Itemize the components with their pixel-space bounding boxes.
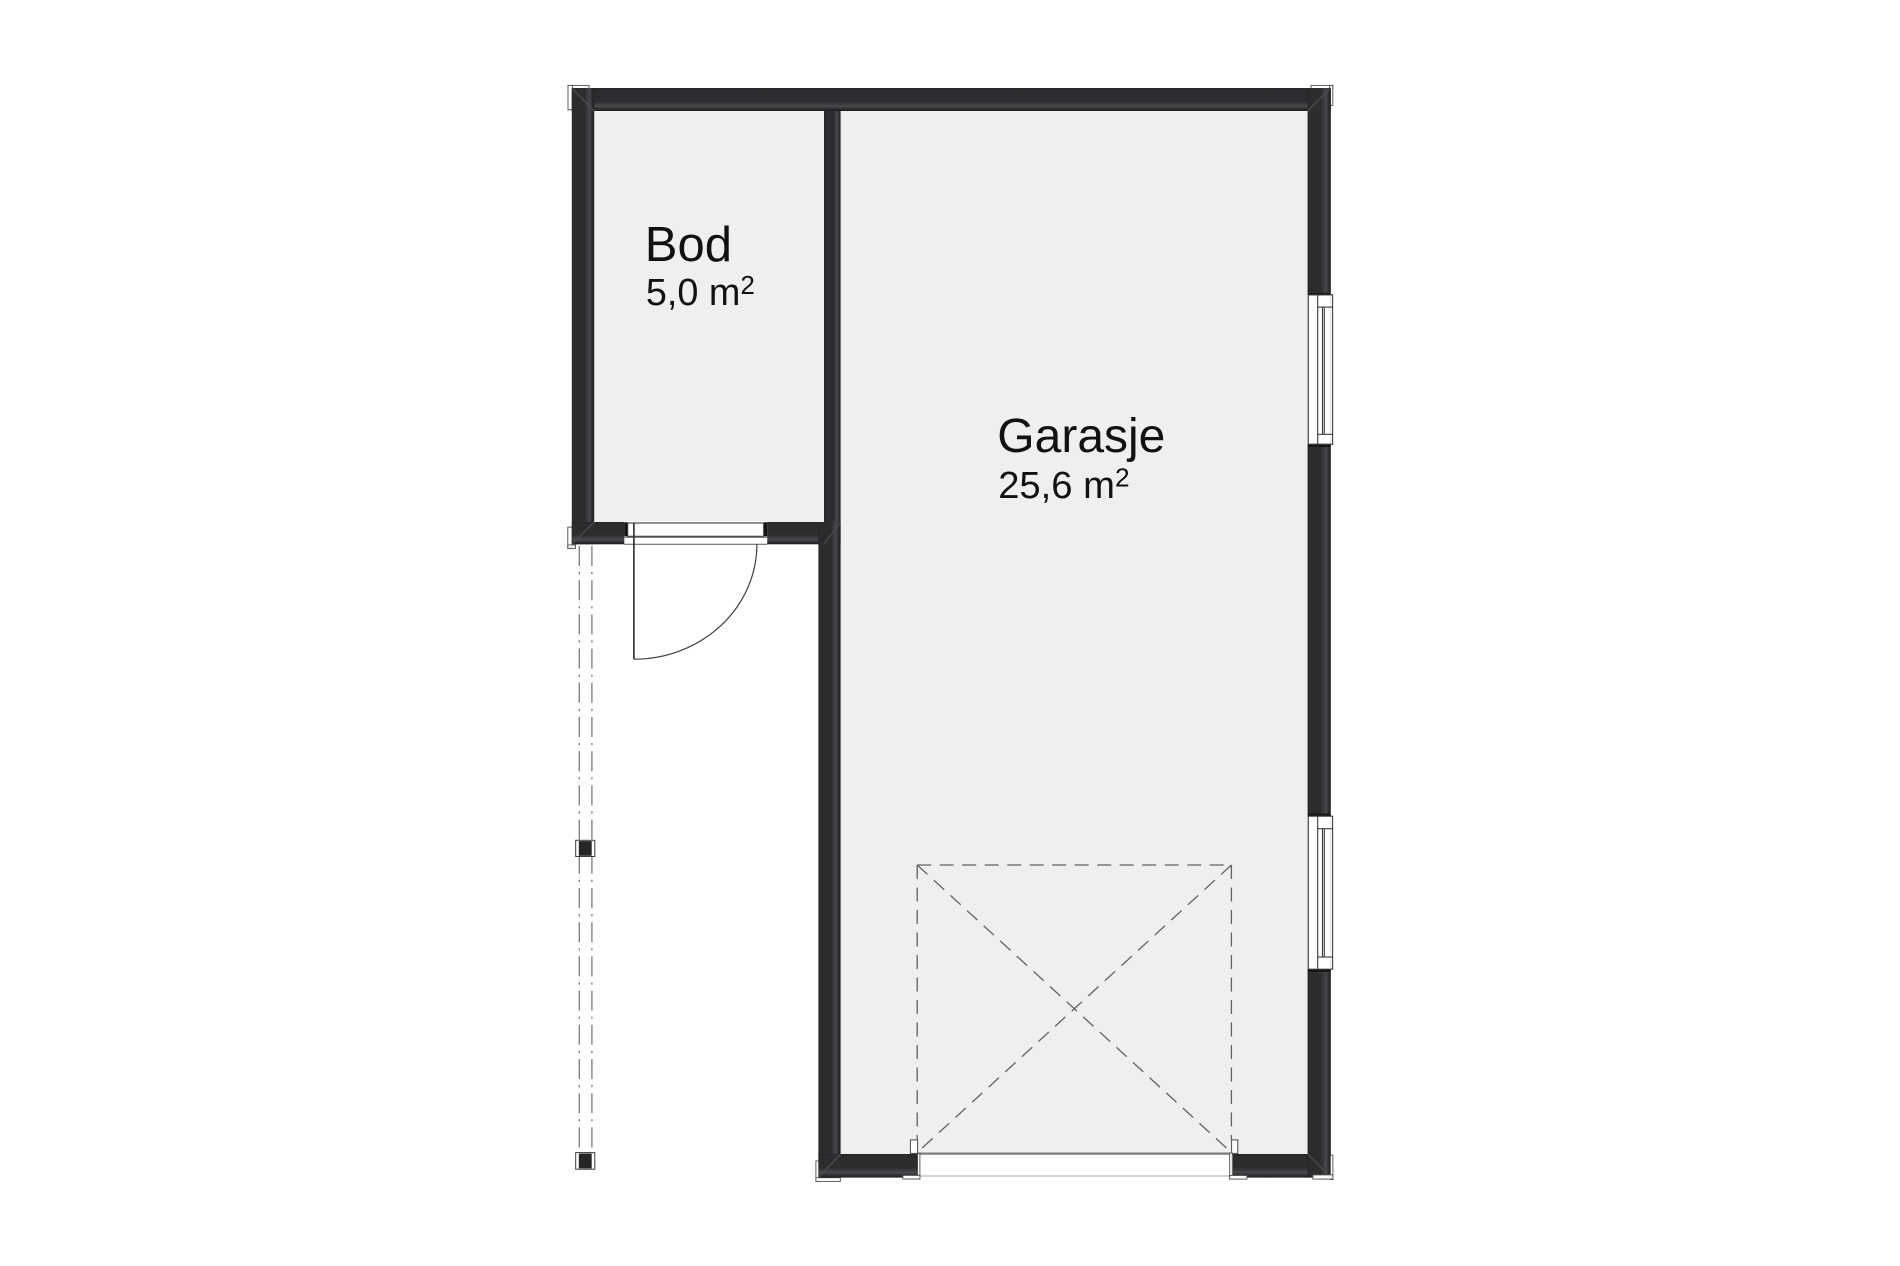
svg-text:25,6 m2: 25,6 m2 — [998, 463, 1129, 508]
svg-text:Bod: Bod — [645, 218, 732, 272]
svg-text:5,0 m2: 5,0 m2 — [646, 270, 755, 314]
svg-text:Garasje: Garasje — [997, 410, 1165, 463]
